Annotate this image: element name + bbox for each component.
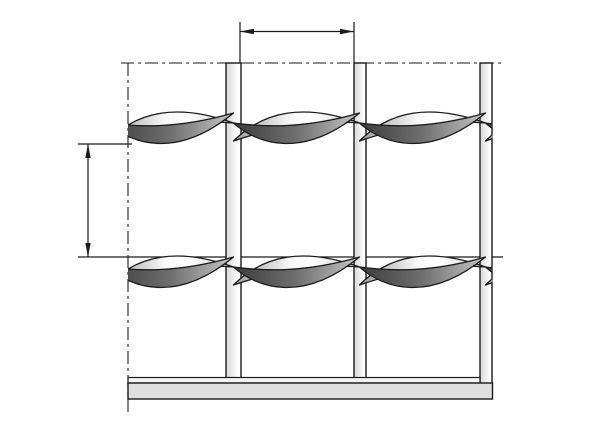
dim-arrowhead-left [240, 29, 254, 34]
dim-arrowhead-down [85, 243, 90, 257]
dim-arrowhead-up [85, 144, 90, 158]
twist-leaf-dark [486, 113, 600, 144]
twist-leaf-light [486, 256, 600, 285]
twist-leaf-light [486, 112, 600, 141]
bearing-bar-vertical-3 [480, 63, 492, 384]
bottom-edge-strip [128, 378, 480, 384]
grating-drawing-svg [0, 0, 600, 424]
twist-leaf-dark [486, 257, 600, 288]
dim-arrowhead-right [340, 29, 354, 34]
grating-technical-diagram [0, 0, 600, 424]
bearing-bar-vertical-1 [226, 63, 241, 379]
bottom-edge-band [128, 383, 493, 399]
bearing-bar-vertical-2 [354, 63, 366, 379]
